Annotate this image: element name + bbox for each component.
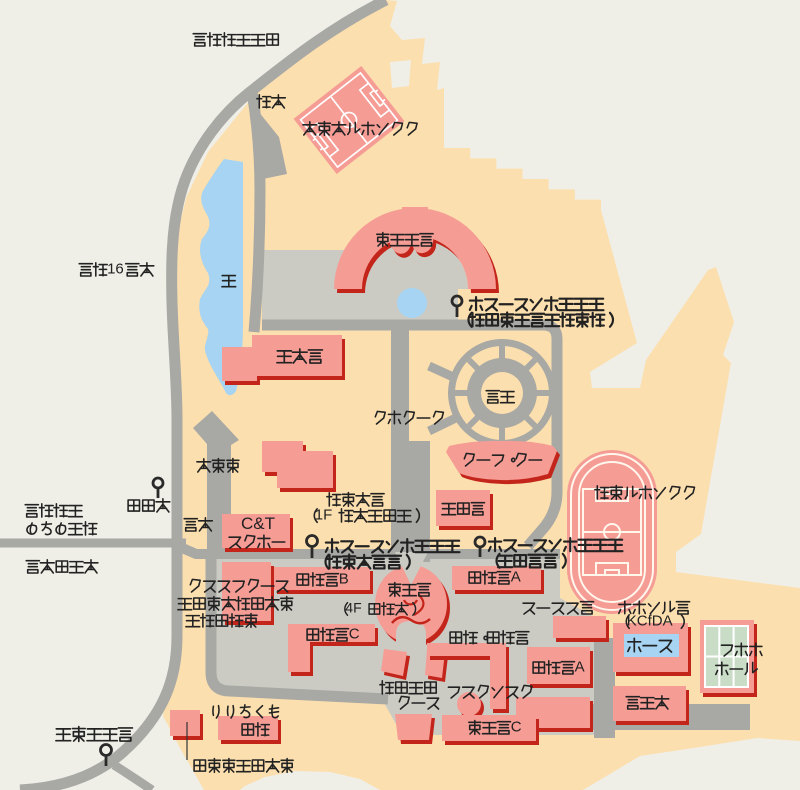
svg-text:C&T: C&T [241, 514, 275, 533]
svg-text:16: 16 [107, 260, 124, 277]
svg-text:1F: 1F [315, 506, 333, 523]
svg-text:A: A [575, 658, 585, 675]
svg-text:A: A [511, 568, 521, 585]
svg-text:C: C [349, 625, 360, 642]
svg-text:4F: 4F [345, 600, 361, 616]
svg-text:B: B [339, 570, 349, 587]
svg-text:C: C [511, 718, 522, 735]
svg-text:KCfDA: KCfDA [627, 612, 673, 629]
